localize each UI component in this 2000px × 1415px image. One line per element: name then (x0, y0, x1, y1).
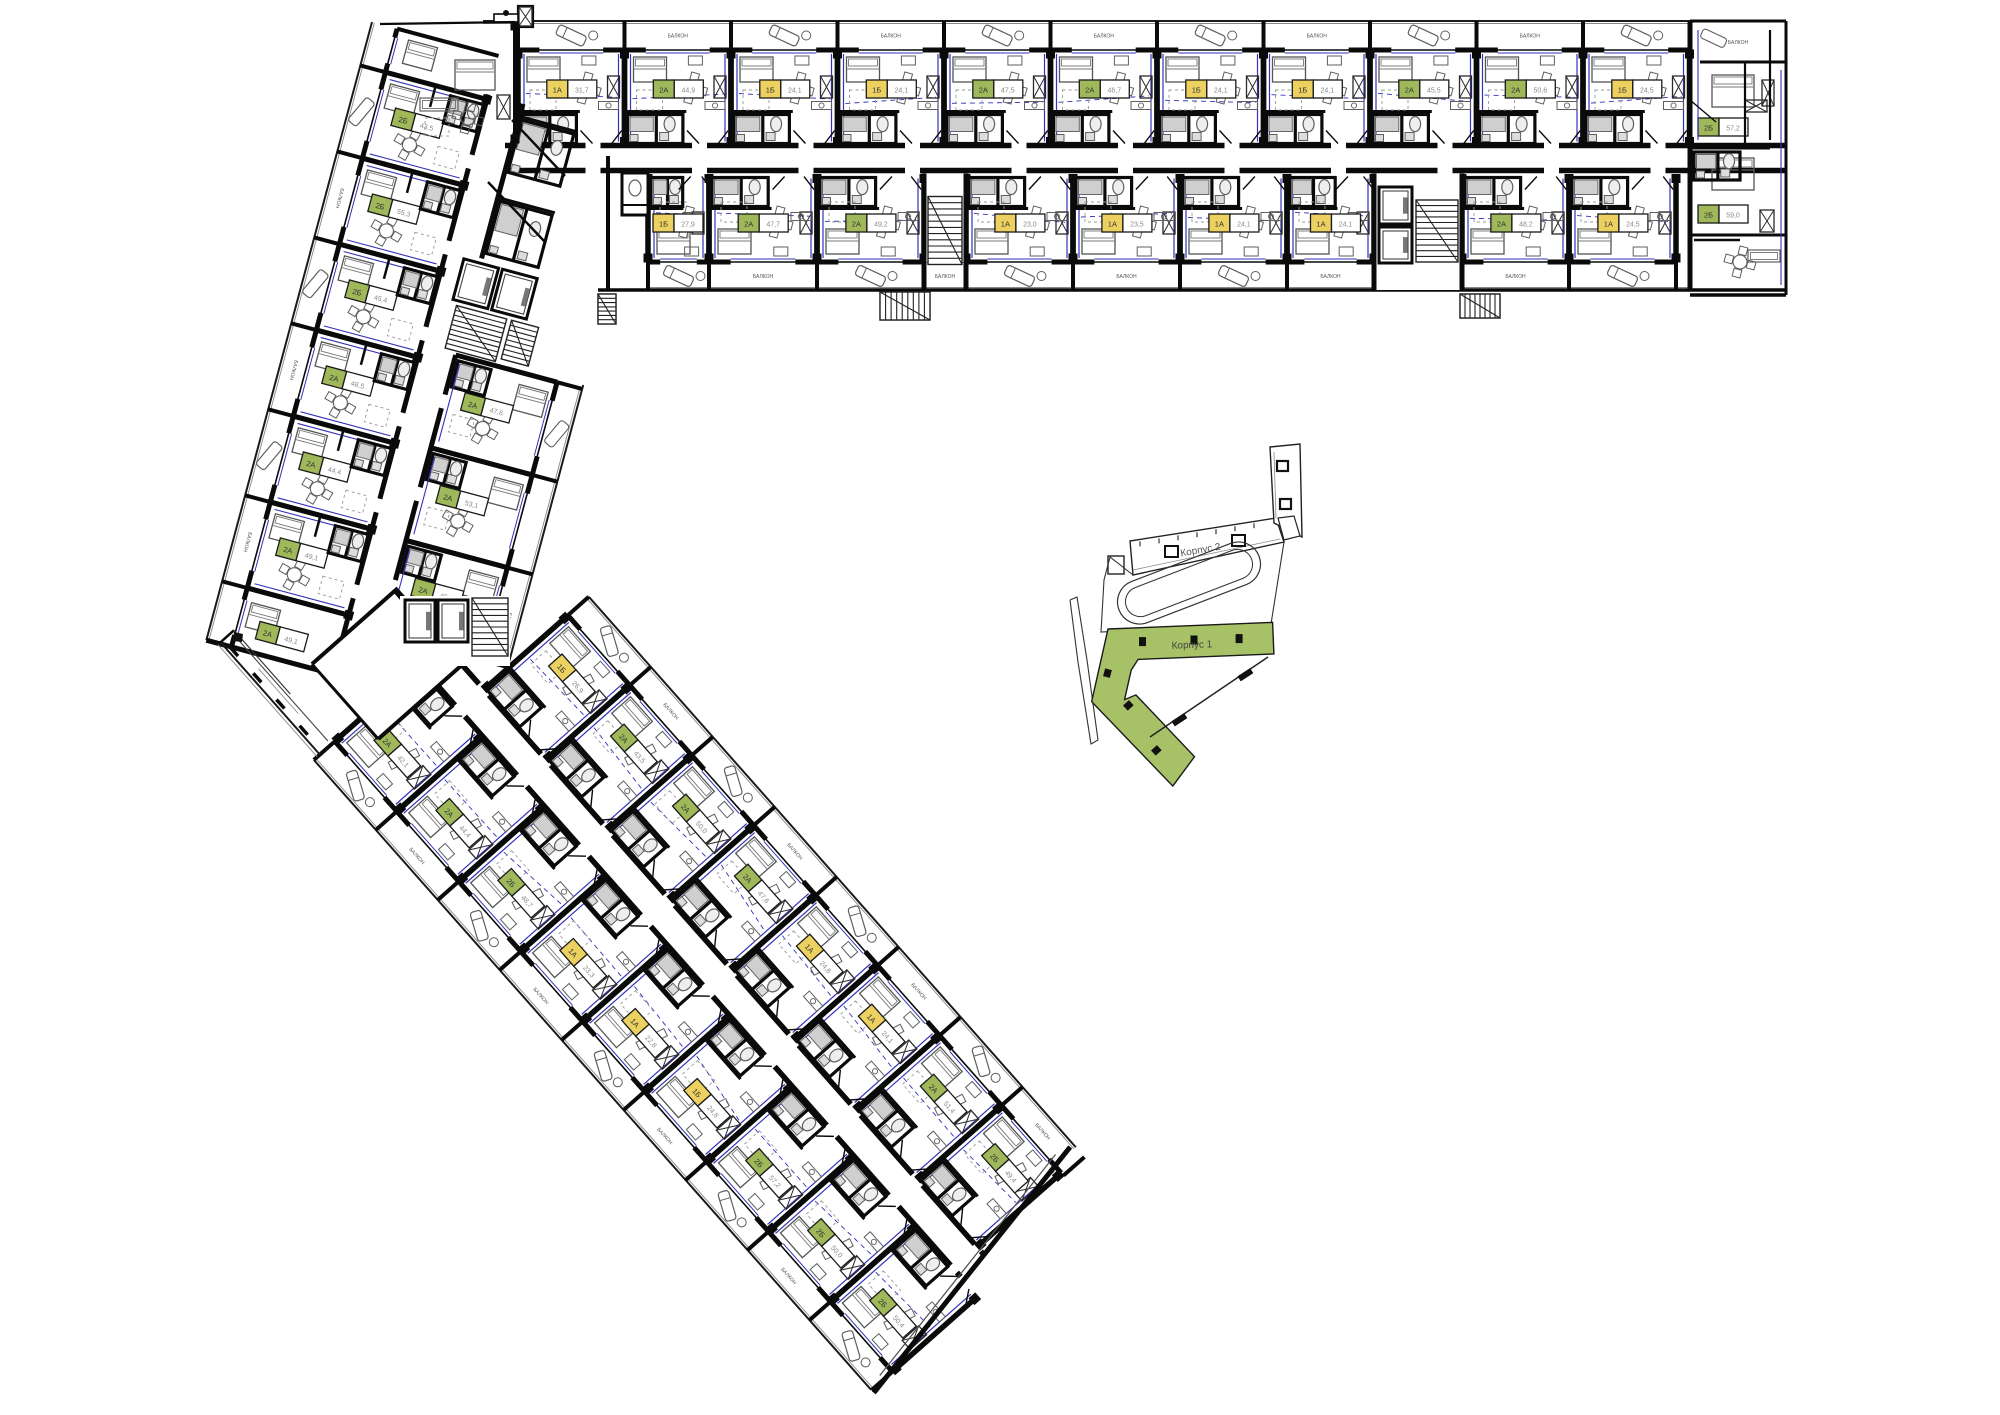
svg-text:23,5: 23,5 (1130, 222, 1144, 229)
svg-text:БАЛКОН: БАЛКОН (1728, 40, 1749, 46)
svg-text:БАЛКОН: БАЛКОН (1094, 34, 1115, 40)
svg-text:2A: 2A (744, 220, 753, 229)
svg-text:24,1: 24,1 (894, 88, 908, 95)
svg-text:59,0: 59,0 (1726, 213, 1740, 220)
svg-text:2Б: 2Б (1704, 124, 1713, 133)
svg-text:1A: 1A (1604, 220, 1613, 229)
svg-text:45,5: 45,5 (1427, 88, 1441, 95)
svg-text:БАЛКОН: БАЛКОН (1116, 274, 1137, 280)
svg-text:1Б: 1Б (659, 220, 668, 229)
svg-text:БАЛКОН: БАЛКОН (881, 34, 902, 40)
svg-text:1A: 1A (1215, 220, 1224, 229)
svg-text:БАЛКОН: БАЛКОН (1505, 274, 1526, 280)
svg-text:1A: 1A (1001, 220, 1010, 229)
svg-text:1Б: 1Б (1298, 86, 1307, 95)
svg-text:31,7: 31,7 (575, 88, 589, 95)
svg-text:50,6: 50,6 (1533, 88, 1547, 95)
svg-text:1Б: 1Б (1192, 86, 1201, 95)
svg-text:БАЛКОН: БАЛКОН (668, 34, 689, 40)
svg-text:24,1: 24,1 (788, 88, 802, 95)
svg-text:24,5: 24,5 (1626, 222, 1640, 229)
svg-text:47,5: 47,5 (1001, 88, 1015, 95)
svg-text:24,1: 24,1 (1339, 222, 1353, 229)
svg-text:1A: 1A (1316, 220, 1325, 229)
svg-text:2A: 2A (1405, 86, 1414, 95)
svg-text:24,5: 24,5 (1640, 88, 1654, 95)
svg-text:2A: 2A (979, 86, 988, 95)
svg-text:48,2: 48,2 (1519, 222, 1533, 229)
svg-text:49,2: 49,2 (874, 222, 888, 229)
svg-text:44,9: 44,9 (681, 88, 695, 95)
svg-text:БАЛКОН: БАЛКОН (753, 274, 774, 280)
svg-text:24,1: 24,1 (1214, 88, 1228, 95)
svg-text:2A: 2A (1085, 86, 1094, 95)
svg-text:2A: 2A (1497, 220, 1506, 229)
svg-text:1Б: 1Б (1618, 86, 1627, 95)
svg-text:2A: 2A (852, 220, 861, 229)
svg-text:2Б: 2Б (1704, 211, 1713, 220)
svg-text:47,7: 47,7 (766, 222, 780, 229)
svg-text:23,0: 23,0 (1023, 222, 1037, 229)
svg-text:46,7: 46,7 (1107, 88, 1121, 95)
svg-text:1Б: 1Б (766, 86, 775, 95)
svg-text:24,1: 24,1 (1320, 88, 1334, 95)
svg-text:2A: 2A (1511, 86, 1520, 95)
svg-text:1A: 1A (1108, 220, 1117, 229)
svg-text:57,2: 57,2 (1726, 126, 1740, 133)
svg-text:1A: 1A (553, 86, 562, 95)
svg-text:Корпус 1: Корпус 1 (1171, 639, 1212, 651)
svg-text:2A: 2A (659, 86, 668, 95)
svg-text:БАЛКОН: БАЛКОН (1307, 34, 1328, 40)
svg-text:БАЛКОН: БАЛКОН (935, 274, 956, 280)
svg-text:27,9: 27,9 (681, 222, 695, 229)
svg-text:БАЛКОН: БАЛКОН (1520, 34, 1541, 40)
svg-text:БАЛКОН: БАЛКОН (1320, 274, 1341, 280)
svg-text:1Б: 1Б (872, 86, 881, 95)
svg-text:24,1: 24,1 (1237, 222, 1251, 229)
